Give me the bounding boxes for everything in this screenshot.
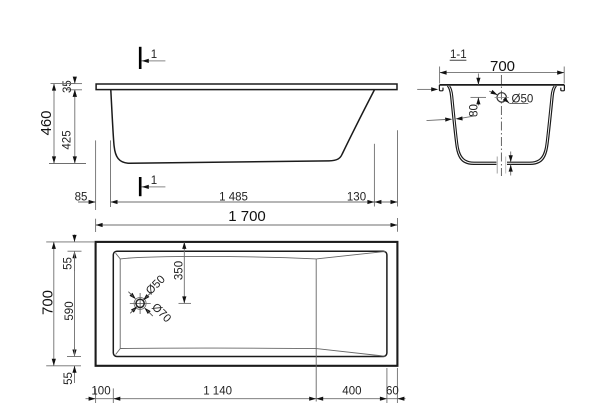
svg-text:1: 1 xyxy=(151,175,157,187)
svg-text:35: 35 xyxy=(62,80,74,93)
svg-text:55: 55 xyxy=(63,372,75,385)
svg-text:1-1: 1-1 xyxy=(450,49,467,61)
svg-text:425: 425 xyxy=(61,130,73,149)
svg-text:85: 85 xyxy=(75,191,88,203)
svg-text:700: 700 xyxy=(39,290,56,315)
svg-text:55: 55 xyxy=(62,257,74,270)
svg-text:1: 1 xyxy=(151,49,157,61)
svg-text:1 700: 1 700 xyxy=(228,208,266,225)
svg-text:130: 130 xyxy=(347,191,366,203)
svg-text:460: 460 xyxy=(38,110,55,135)
svg-text:80: 80 xyxy=(468,104,480,117)
svg-text:1 485: 1 485 xyxy=(219,191,248,203)
svg-text:350: 350 xyxy=(174,261,186,280)
svg-text:100: 100 xyxy=(91,386,110,398)
svg-text:400: 400 xyxy=(342,386,361,398)
svg-text:Ø50: Ø50 xyxy=(512,93,534,105)
svg-text:700: 700 xyxy=(490,58,515,75)
svg-text:1 140: 1 140 xyxy=(203,386,232,398)
svg-text:60: 60 xyxy=(386,386,399,398)
svg-text:590: 590 xyxy=(64,301,76,320)
